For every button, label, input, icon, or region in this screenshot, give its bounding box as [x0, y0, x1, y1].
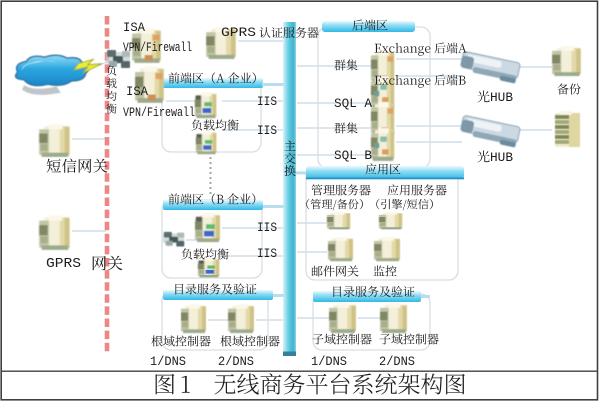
svg-text:HUB: HUB: [490, 90, 513, 105]
svg-text:1/DNS: 1/DNS: [311, 354, 347, 369]
svg-text:IIS: IIS: [257, 246, 277, 261]
svg-text:GPRS: GPRS: [46, 256, 81, 272]
svg-text:ISA: ISA: [126, 84, 148, 99]
svg-text:VPN/Firewall: VPN/Firewall: [123, 40, 192, 55]
svg-text:ISA: ISA: [123, 20, 145, 35]
svg-text:VPN/Firewall: VPN/Firewall: [123, 105, 195, 120]
svg-text:SQL A: SQL A: [334, 96, 372, 111]
svg-text:2/DNS: 2/DNS: [218, 354, 254, 369]
svg-text:1/DNS: 1/DNS: [150, 354, 186, 369]
svg-text:SQL B: SQL B: [334, 148, 372, 163]
svg-text:2/DNS: 2/DNS: [379, 354, 415, 369]
svg-text:HUB: HUB: [490, 150, 513, 165]
svg-text:GPRS: GPRS: [221, 25, 256, 40]
svg-text:IIS: IIS: [257, 220, 277, 235]
svg-text:IIS: IIS: [257, 123, 277, 138]
svg-text:IIS: IIS: [257, 94, 277, 109]
